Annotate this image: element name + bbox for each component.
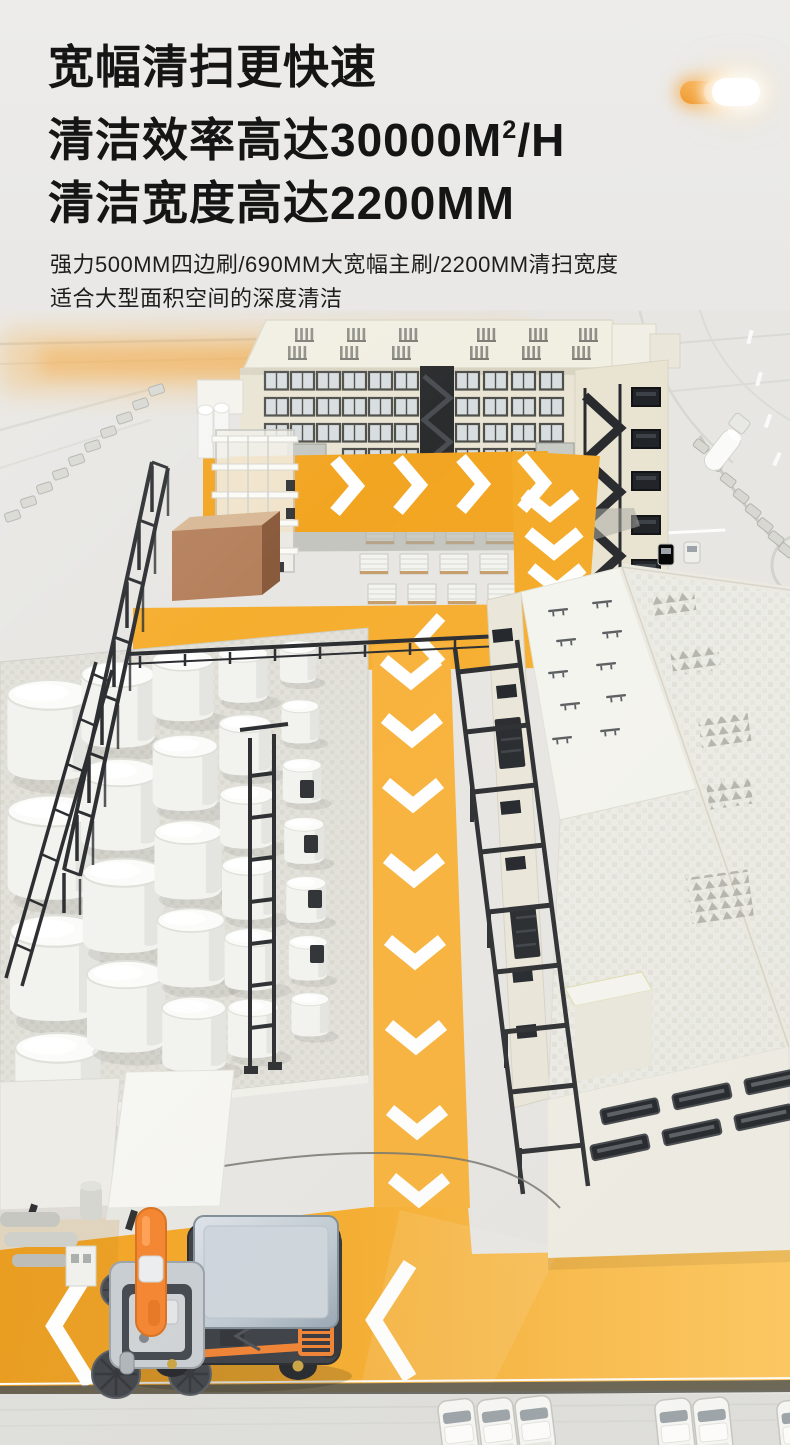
subheadline-line1: 强力500MM四边刷/690MM大宽幅主刷/2200MM清扫宽度 — [50, 248, 619, 282]
headline: 宽幅清扫更快速 清洁效率高达30000M2/H 清洁宽度高达2200MM — [48, 36, 565, 235]
headline-line2: 清洁效率高达30000M2/H — [48, 99, 565, 172]
factory-scene-illustration — [0, 310, 790, 1445]
product-poster: 宽幅清扫更快速 清洁效率高达30000M2/H 清洁宽度高达2200MM 强力5… — [0, 0, 790, 1445]
headline-line3: 清洁宽度高达2200MM — [48, 172, 565, 235]
subheadline: 强力500MM四边刷/690MM大宽幅主刷/2200MM清扫宽度 适合大型面积空… — [50, 248, 619, 316]
toggle-off-pill — [712, 78, 760, 106]
toggle-decoration — [676, 72, 768, 112]
light-overlay — [0, 310, 790, 1445]
headline-line1: 宽幅清扫更快速 — [48, 36, 565, 99]
